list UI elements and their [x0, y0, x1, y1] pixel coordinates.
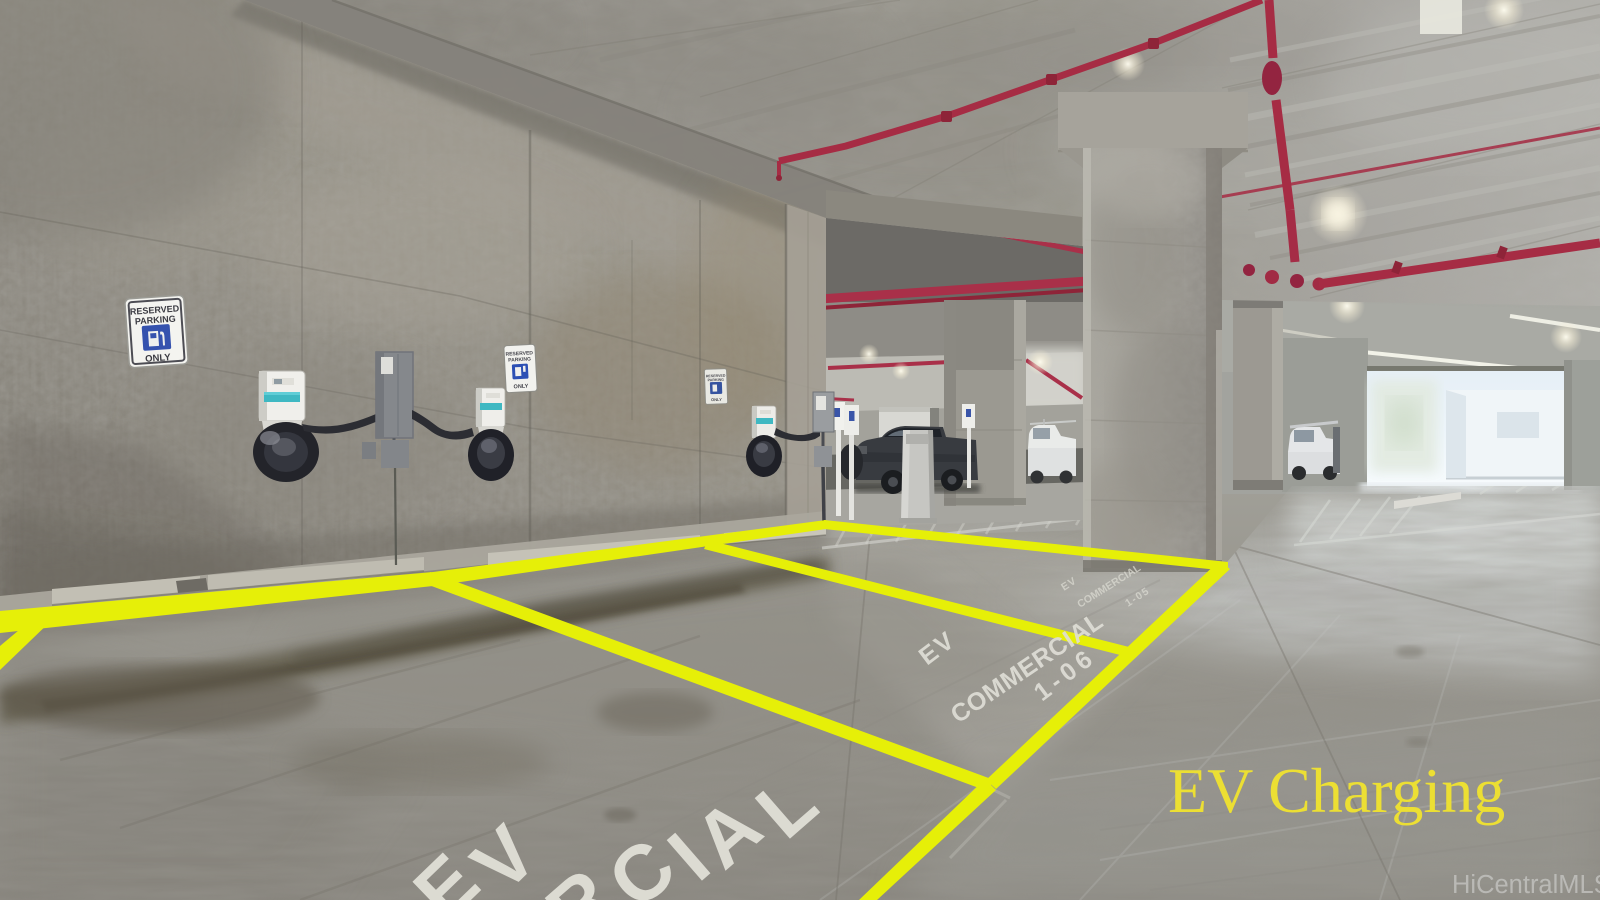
svg-text:ONLY: ONLY: [513, 384, 528, 391]
svg-text:HiCentralMLS: HiCentralMLS: [1452, 871, 1600, 899]
svg-text:PARKING: PARKING: [708, 378, 725, 383]
svg-text:PARKING: PARKING: [508, 356, 531, 363]
svg-text:ONLY: ONLY: [145, 352, 172, 365]
svg-text:EV Charging: EV Charging: [1168, 755, 1505, 826]
svg-text:ONLY: ONLY: [711, 397, 722, 402]
